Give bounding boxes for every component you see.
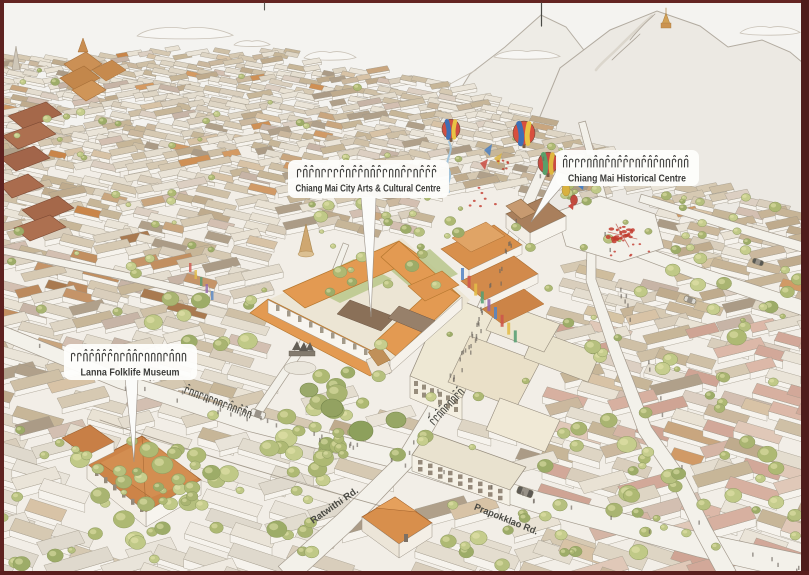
svg-text:Lanna Folklife Museum: Lanna Folklife Museum: [81, 368, 180, 379]
svg-text:Chiang Mai Historical Centre: Chiang Mai Historical Centre: [568, 174, 686, 185]
svg-text:Chiang Mai City Arts & Cultura: Chiang Mai City Arts & Cultural Centre: [296, 184, 441, 195]
